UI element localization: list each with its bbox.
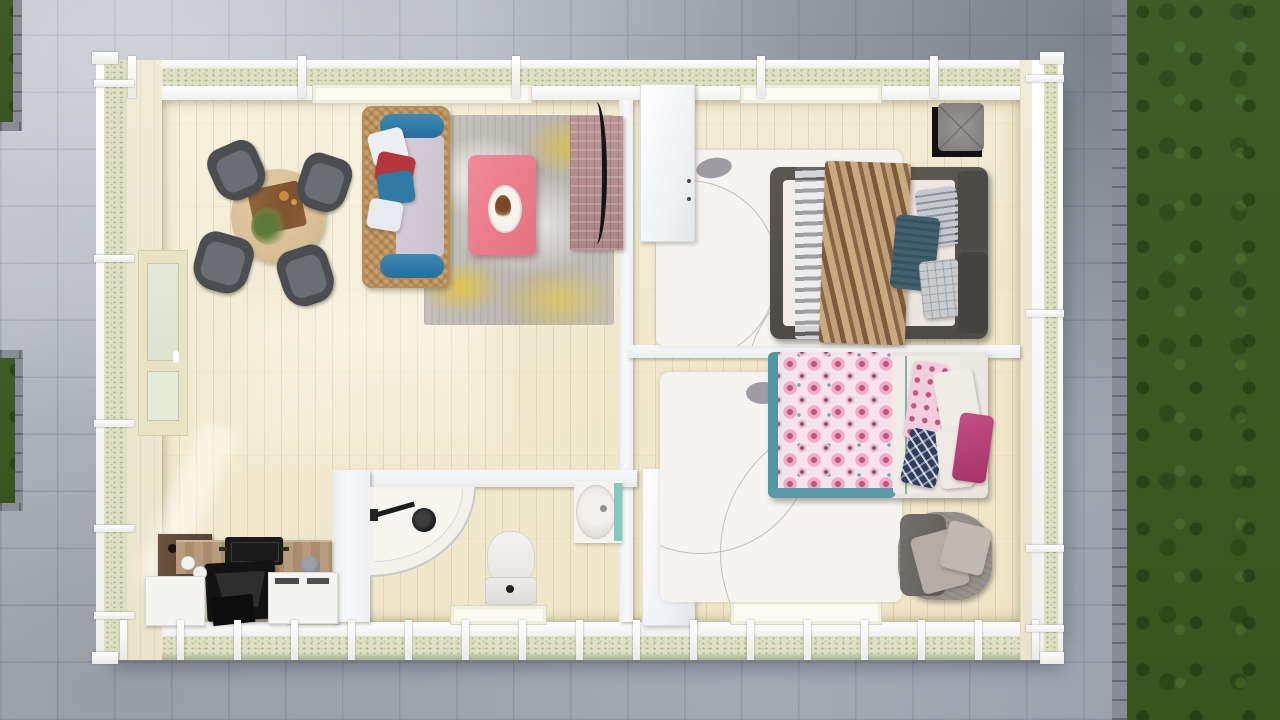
wall-tie-bottom-15 [975,620,982,660]
wall-tie-bottom-0 [120,620,127,660]
wall-tie-bottom-12 [804,620,811,660]
wall-tie-bottom-1 [177,620,184,660]
wall-tie-bottom-7 [519,620,526,660]
bed1-headboard-cushion-top [958,171,988,250]
kitchen-cooktop-grate [231,542,279,562]
wall-right-outer-edge [1058,60,1063,660]
shower-wall-mount [370,509,378,521]
dining-centerpiece-plant [251,207,287,245]
kitchen-cabinet-slot-2 [307,578,329,584]
wall-tie-bottom-3 [291,620,298,660]
lawn-left-mid [0,358,15,503]
wall-tie-bottom-11 [747,620,754,660]
kitchen-hood-box [211,594,256,626]
wall-tie-left-0 [94,80,134,87]
coffee-table-tray-decor [495,195,511,219]
lawn-left-mid-border-h2 [0,503,23,511]
wall-right-insulation [1044,60,1058,660]
wall-tie-right-1 [1026,310,1064,317]
wall-top-outer-edge [98,60,1063,68]
lawn-left-mid-border-v [15,350,23,511]
wall-tie-bottom-6 [462,620,469,660]
wall-tie-left-4 [94,612,134,619]
armchair-bedroom2 [898,512,992,600]
door-bedroom1-hinge-2 [687,197,691,201]
wall-tie-bottom-2 [234,620,241,660]
wall-tie-top-0 [128,56,136,98]
kitchen-pan-handle-left [219,547,227,551]
lawn-left-top-border-v [13,0,22,131]
shower-head [412,508,436,532]
wall-tie-right-3 [1026,625,1064,632]
wall-tie-bottom-10 [690,620,697,660]
wall-right-inner-face [1020,60,1032,660]
dining-centerpiece-fruit [279,191,289,201]
bed-bedroom1 [770,167,988,339]
door-bedroom1 [640,84,695,242]
toilet-flush-button [506,585,514,593]
tv-screen [586,102,607,244]
paper-roll-1 [181,556,195,570]
wall-tie-bottom-9 [633,620,640,660]
floor-plan-scene [0,0,1280,720]
door-bedroom1-hinge-1 [687,179,691,183]
wall-tie-right-0 [1026,75,1064,82]
nightstand-cushion [938,103,984,151]
wall-tie-top-1 [298,56,306,98]
corner-joist-bottom-right [1040,652,1064,664]
kitchen-cabinet-left [145,576,205,626]
wall-tie-left-3 [94,525,134,532]
lawn-right [1127,0,1280,720]
wall-tie-right-2 [1026,545,1064,552]
wall-tie-left-2 [94,420,134,427]
wall-tie-bottom-13 [861,620,868,660]
wall-tie-top-2 [512,56,520,98]
wall-tie-bottom-4 [348,620,355,660]
glass-door-left-wall [138,250,188,436]
corner-joist-top-left [92,52,118,64]
washbasin-faucet [600,505,607,512]
glass-door-handle [173,351,179,363]
wall-left-outer-edge [96,60,104,660]
rug-bedroom1-petal [695,155,734,181]
wall-top-inner-edge [98,86,1063,100]
bed2-duvet-pink [768,352,896,498]
wall-right-inner-edge [1032,60,1044,660]
bed1-headboard-cushion-bottom [958,252,988,333]
wall-tie-top-3 [757,56,765,98]
bed-bedroom2 [768,352,988,498]
corner-joist-bottom-left [92,652,118,664]
wall-tie-bottom-8 [576,620,583,660]
kitchen-cabinet-right [268,572,338,624]
wall-top-insulation [98,68,1063,86]
wall-tie-bottom-5 [405,620,412,660]
sofa-bolster-bottom [380,254,444,278]
sofa-pillow-white-2 [366,197,405,232]
wall-left-insulation [104,60,126,660]
washbasin-splashback [614,483,622,541]
washbasin [574,481,622,543]
lawn-left-mid-border-h1 [0,350,23,358]
toilet [485,531,535,605]
washbasin-bowl [576,485,616,539]
corner-joist-top-right [1040,52,1064,64]
glass-door-pane-upper [147,263,179,361]
kitchen-pan-handle-right [281,547,289,551]
lawn-right-paver-border [1112,0,1127,720]
kitchen-cabinet-slot-1 [275,578,299,584]
nightstand-bedroom1 [932,103,986,159]
glass-door-pane-lower [147,371,179,421]
window-living-top [312,84,532,104]
wall-tie-bottom-14 [918,620,925,660]
coffee-table [468,155,536,255]
lawn-left-top [0,0,13,122]
lawn-left-top-border-h [0,122,22,131]
sofa [362,106,450,288]
wall-tie-top-4 [930,56,938,98]
wall-tie-left-1 [94,255,134,262]
